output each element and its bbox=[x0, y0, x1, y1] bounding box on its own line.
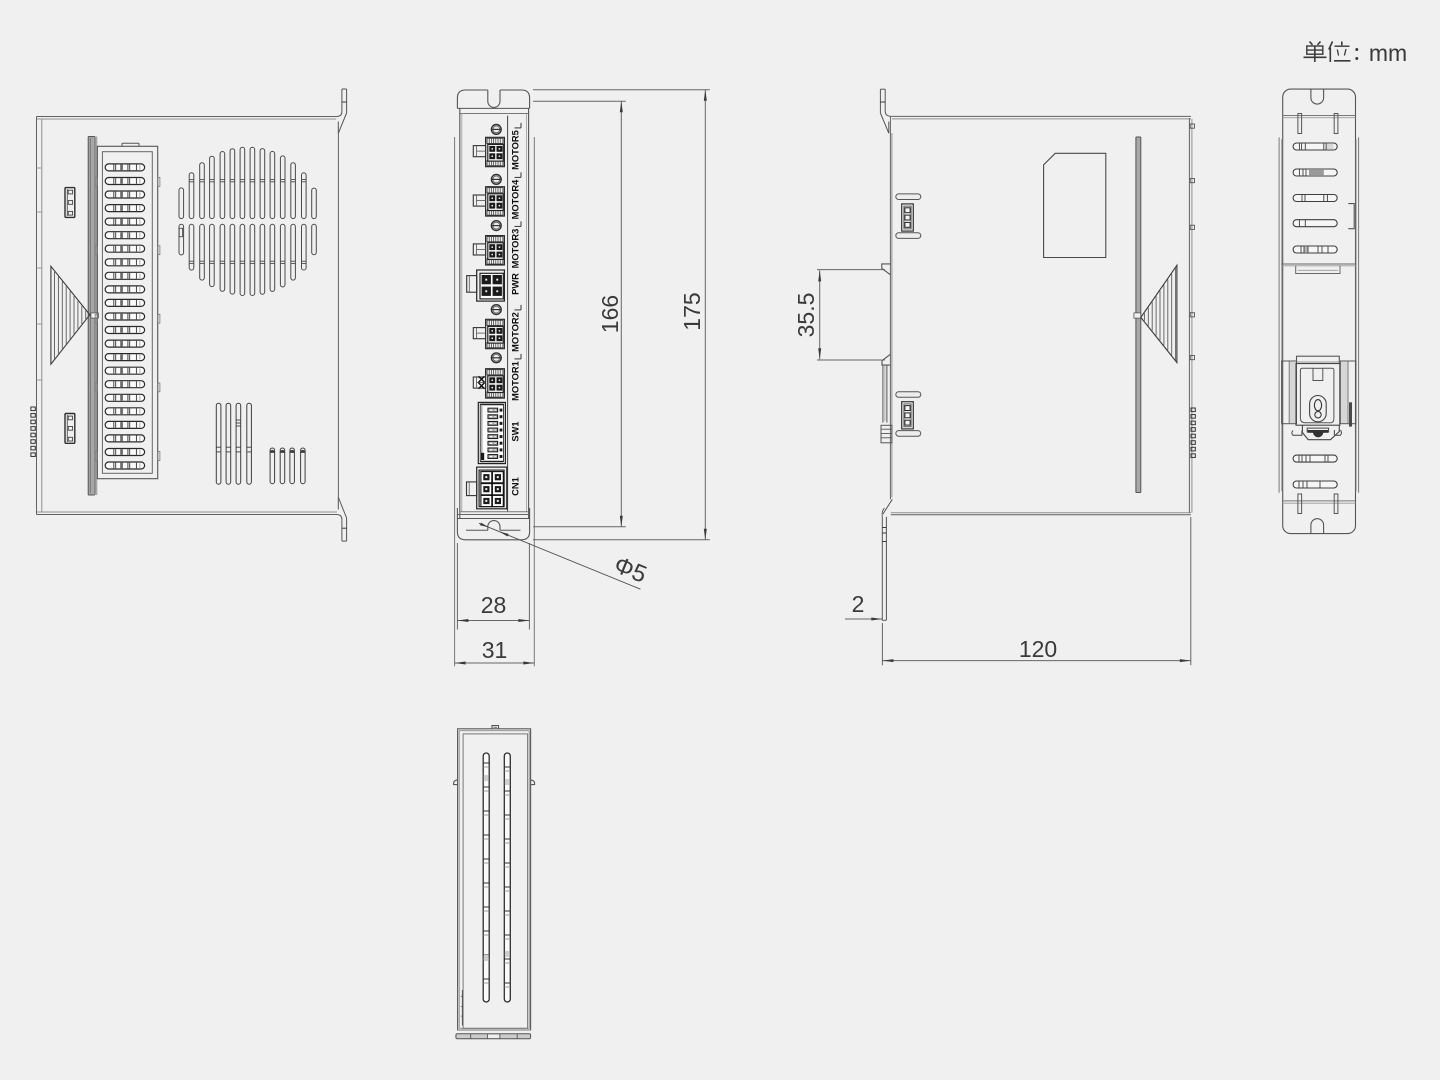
svg-text:SW1: SW1 bbox=[511, 421, 521, 441]
svg-text:28: 28 bbox=[481, 592, 507, 618]
svg-text:MOTOR4: MOTOR4 bbox=[511, 179, 521, 219]
svg-text:CN1: CN1 bbox=[511, 477, 521, 496]
svg-text:MOTOR3: MOTOR3 bbox=[511, 229, 521, 269]
svg-text:120: 120 bbox=[1019, 636, 1057, 662]
svg-text:31: 31 bbox=[482, 637, 508, 663]
svg-text:MOTOR1: MOTOR1 bbox=[511, 361, 521, 401]
svg-text:mm: mm bbox=[1369, 40, 1407, 66]
svg-text:166: 166 bbox=[597, 295, 623, 333]
svg-text:MOTOR5: MOTOR5 bbox=[511, 130, 521, 170]
svg-text:2: 2 bbox=[852, 591, 865, 617]
svg-text:35.5: 35.5 bbox=[793, 293, 819, 338]
svg-text:175: 175 bbox=[679, 292, 705, 330]
svg-text:MOTOR2: MOTOR2 bbox=[511, 312, 521, 352]
svg-text:PWR: PWR bbox=[511, 273, 521, 295]
